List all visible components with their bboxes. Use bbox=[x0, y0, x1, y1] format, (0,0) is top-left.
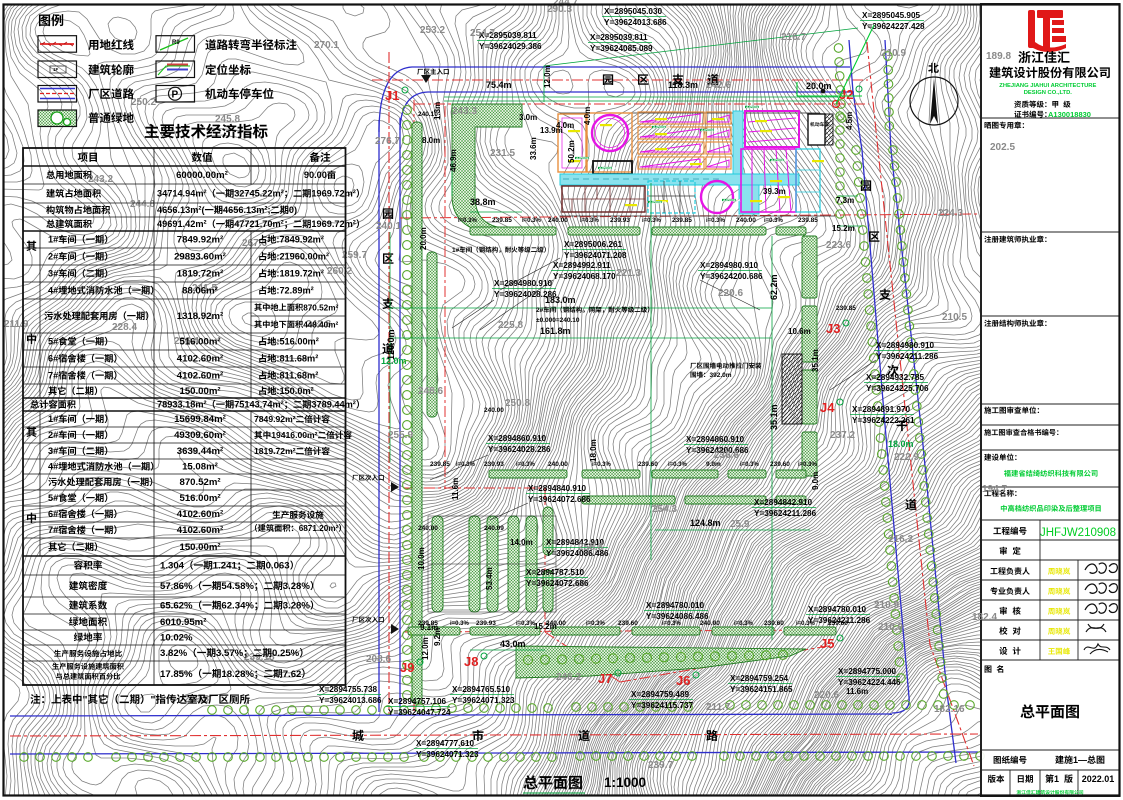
svg-text:3789.44m²: 3789.44m² bbox=[311, 400, 355, 410]
svg-text:i=0.3%: i=0.3% bbox=[592, 462, 612, 468]
svg-text:239.93: 239.93 bbox=[476, 620, 496, 627]
svg-text:53.4m: 53.4m bbox=[485, 567, 494, 590]
svg-text:216.7: 216.7 bbox=[781, 32, 806, 43]
svg-text:240.00: 240.00 bbox=[546, 620, 566, 627]
svg-text:Y=39624068.170: Y=39624068.170 bbox=[553, 272, 616, 281]
svg-text:18.28%: 18.28% bbox=[221, 669, 254, 680]
svg-text::150.0m²: :150.0m² bbox=[276, 386, 313, 396]
svg-text:JHFJW210908: JHFJW210908 bbox=[1040, 527, 1116, 539]
svg-text:ZHEJIANG JIAHUI ARCHITECTURE: ZHEJIANG JIAHUI ARCHITECTURE bbox=[999, 83, 1096, 89]
svg-text:4-6500kVA: 4-6500kVA bbox=[701, 129, 719, 133]
svg-text:X=2895006.261: X=2895006.261 bbox=[564, 240, 622, 249]
svg-text:194.7: 194.7 bbox=[982, 484, 1007, 495]
svg-text:124.8m: 124.8m bbox=[690, 518, 721, 528]
svg-text:239.60: 239.60 bbox=[764, 620, 784, 627]
svg-text:20.0m: 20.0m bbox=[806, 81, 832, 91]
svg-text:244.8: 244.8 bbox=[130, 199, 155, 210]
svg-text:250.8: 250.8 bbox=[505, 398, 530, 409]
svg-text:120.0m: 120.0m bbox=[386, 329, 396, 360]
svg-text:4656.13m²;: 4656.13m²; bbox=[223, 205, 271, 215]
svg-text:Y=39624085.089: Y=39624085.089 bbox=[590, 44, 653, 53]
svg-text:18.0m: 18.0m bbox=[589, 439, 598, 462]
svg-text:240.00: 240.00 bbox=[736, 217, 756, 224]
svg-text:243.3: 243.3 bbox=[452, 106, 477, 117]
svg-text:Y=39624225.706: Y=39624225.706 bbox=[866, 384, 929, 393]
svg-text:J4: J4 bbox=[820, 400, 835, 415]
svg-text:220.6: 220.6 bbox=[718, 288, 743, 299]
svg-text:A130018830: A130018830 bbox=[1048, 110, 1091, 119]
svg-text:3.82%: 3.82% bbox=[160, 648, 188, 659]
svg-text:20.0m: 20.0m bbox=[419, 227, 428, 250]
svg-text:448.40m²: 448.40m² bbox=[303, 320, 338, 329]
svg-text:X=2894759.489: X=2894759.489 bbox=[631, 690, 689, 699]
svg-text:248.6: 248.6 bbox=[418, 386, 443, 397]
svg-text:J6: J6 bbox=[676, 673, 690, 688]
svg-text:7849.92m²: 7849.92m² bbox=[254, 414, 296, 424]
svg-text:231.5: 231.5 bbox=[490, 148, 515, 159]
svg-text:1: 1 bbox=[1054, 774, 1059, 784]
svg-text:R9: R9 bbox=[172, 40, 180, 46]
svg-text:516.00m²: 516.00m² bbox=[180, 337, 221, 348]
svg-text:6#: 6# bbox=[48, 509, 58, 519]
svg-text:X=2894842.910: X=2894842.910 bbox=[754, 498, 812, 507]
svg-text:182.16: 182.16 bbox=[934, 704, 965, 715]
svg-text:i=0.3%: i=0.3% bbox=[450, 621, 470, 627]
svg-text:0.25%: 0.25% bbox=[272, 648, 300, 659]
svg-text:1318.92m²: 1318.92m² bbox=[177, 311, 223, 322]
svg-text:Y=39624028.286: Y=39624028.286 bbox=[494, 290, 557, 299]
svg-text:4102.60m²: 4102.60m² bbox=[177, 354, 223, 365]
svg-text:3.0m: 3.0m bbox=[519, 113, 537, 122]
svg-text:4102.60m²: 4102.60m² bbox=[177, 525, 223, 536]
svg-text:34714.94m²: 34714.94m² bbox=[157, 189, 207, 199]
svg-text:3.28%: 3.28% bbox=[283, 581, 311, 592]
svg-text:33.6m: 33.6m bbox=[529, 137, 538, 160]
svg-text:222.9: 222.9 bbox=[894, 452, 919, 463]
svg-text:±0.000=240.10: ±0.000=240.10 bbox=[536, 317, 580, 324]
svg-text:J1: J1 bbox=[385, 88, 399, 103]
svg-text:3#: 3# bbox=[48, 269, 58, 279]
svg-text:14.0m: 14.0m bbox=[510, 538, 533, 547]
svg-text:202.5: 202.5 bbox=[990, 142, 1015, 153]
svg-text:i=0.3%: i=0.3% bbox=[668, 462, 688, 468]
svg-text::811.68m²: :811.68m² bbox=[276, 354, 318, 364]
svg-text:X=2894765.510: X=2894765.510 bbox=[452, 685, 510, 694]
svg-text:Y=39624211.286: Y=39624211.286 bbox=[876, 352, 939, 361]
svg-text:Y=39624115.737: Y=39624115.737 bbox=[631, 701, 694, 710]
svg-text:2#: 2# bbox=[536, 307, 544, 314]
svg-text:240.00: 240.00 bbox=[484, 407, 504, 414]
svg-text:223.6: 223.6 bbox=[826, 240, 851, 251]
svg-text:216.2: 216.2 bbox=[888, 534, 913, 545]
svg-text:4-6500kVA: 4-6500kVA bbox=[649, 201, 667, 205]
svg-text:15.08m²: 15.08m² bbox=[182, 462, 218, 473]
svg-text:4.0m: 4.0m bbox=[583, 107, 592, 125]
svg-text:392.0m: 392.0m bbox=[710, 372, 732, 379]
svg-text:DESIGN CO.,LTD.: DESIGN CO.,LTD. bbox=[1024, 90, 1073, 96]
svg-text:46.9m: 46.9m bbox=[449, 149, 458, 172]
svg-text:240.10: 240.10 bbox=[418, 111, 438, 118]
svg-text:7.62: 7.62 bbox=[283, 669, 302, 680]
svg-text:J5: J5 bbox=[820, 636, 834, 651]
svg-text:50.2m: 50.2m bbox=[567, 140, 576, 163]
svg-text:6871.20m²: 6871.20m² bbox=[299, 524, 339, 533]
svg-text:10.6m: 10.6m bbox=[788, 327, 811, 336]
svg-text::516.00m²: :516.00m² bbox=[276, 337, 318, 347]
svg-text:211.7: 211.7 bbox=[706, 702, 731, 713]
svg-text:6010.95m²: 6010.95m² bbox=[160, 617, 206, 628]
svg-text:0): 0) bbox=[289, 205, 297, 215]
svg-text:1F: 1F bbox=[53, 67, 59, 72]
svg-text:9.2m: 9.2m bbox=[433, 628, 442, 646]
svg-text:X=2895039.811: X=2895039.811 bbox=[590, 33, 648, 42]
svg-text:J3: J3 bbox=[826, 321, 840, 336]
svg-text:1—: 1— bbox=[1073, 755, 1087, 765]
svg-text:Y=39624072.686: Y=39624072.686 bbox=[528, 495, 591, 504]
svg-text:i=0.3%: i=0.3% bbox=[586, 621, 606, 627]
svg-text:49309.60m²: 49309.60m² bbox=[174, 430, 226, 441]
svg-text:i=0.3%: i=0.3% bbox=[516, 621, 536, 627]
svg-text:90.00: 90.00 bbox=[304, 170, 327, 180]
svg-text:239.93: 239.93 bbox=[610, 217, 630, 224]
svg-text:239.85: 239.85 bbox=[836, 305, 856, 312]
svg-text:239.85: 239.85 bbox=[798, 217, 818, 224]
svg-text:1#: 1# bbox=[452, 247, 460, 254]
svg-text:240.09: 240.09 bbox=[484, 525, 504, 532]
svg-text:5#: 5# bbox=[48, 493, 58, 503]
svg-text:1.304: 1.304 bbox=[160, 561, 185, 572]
svg-text:2022.01: 2022.01 bbox=[1082, 774, 1115, 784]
svg-text:62.34%: 62.34% bbox=[221, 601, 254, 612]
svg-text:X=2894980.910: X=2894980.910 bbox=[700, 261, 758, 270]
svg-text:i=0.3%: i=0.3% bbox=[456, 462, 476, 468]
svg-text:4#: 4# bbox=[48, 286, 58, 296]
svg-text:43.0m: 43.0m bbox=[500, 639, 526, 649]
svg-text:210.9: 210.9 bbox=[874, 600, 899, 611]
svg-text:X=2894840.910: X=2894840.910 bbox=[528, 484, 586, 493]
svg-text:239.85: 239.85 bbox=[492, 217, 512, 224]
svg-text:1819.72m²: 1819.72m² bbox=[254, 446, 296, 456]
svg-text:Y=39624151.865: Y=39624151.865 bbox=[730, 685, 793, 694]
svg-text:75.4m: 75.4m bbox=[486, 80, 512, 90]
svg-text::21960.00m²: :21960.00m² bbox=[276, 252, 329, 262]
svg-text:210.9: 210.9 bbox=[878, 622, 903, 633]
svg-text:225.8: 225.8 bbox=[498, 320, 523, 331]
svg-text:7849.92m²: 7849.92m² bbox=[177, 235, 223, 246]
svg-text:X=2894980.910: X=2894980.910 bbox=[876, 341, 934, 350]
svg-text:65.62%: 65.62% bbox=[160, 601, 193, 612]
svg-text:250.2: 250.2 bbox=[131, 97, 156, 108]
svg-text:i=0.3%: i=0.3% bbox=[458, 218, 478, 224]
svg-text:150.00m²: 150.00m² bbox=[180, 386, 221, 397]
svg-text:i=0.3%: i=0.3% bbox=[662, 621, 682, 627]
svg-text:253.2: 253.2 bbox=[420, 25, 445, 36]
svg-text:516.00m²: 516.00m² bbox=[180, 493, 221, 504]
svg-text:240.00: 240.00 bbox=[548, 217, 568, 224]
svg-text::811.68m²: :811.68m² bbox=[276, 371, 318, 381]
svg-text:i=0.3%: i=0.3% bbox=[516, 462, 536, 468]
svg-text:Y=39624013.686: Y=39624013.686 bbox=[604, 18, 667, 27]
svg-text:239.60: 239.60 bbox=[770, 461, 790, 468]
svg-text:19416.00m²: 19416.00m² bbox=[271, 430, 317, 440]
svg-text:1#: 1# bbox=[48, 414, 58, 424]
svg-text:221.3: 221.3 bbox=[616, 268, 641, 279]
svg-text:4.5m: 4.5m bbox=[845, 112, 854, 130]
svg-text:211.9: 211.9 bbox=[4, 319, 29, 330]
svg-text:4-6500kVA: 4-6500kVA bbox=[599, 167, 617, 171]
svg-text:4-6500kVA: 4-6500kVA bbox=[771, 159, 789, 163]
svg-text:1969.72m²: 1969.72m² bbox=[311, 219, 355, 229]
svg-text:i=0.3%: i=0.3% bbox=[522, 218, 542, 224]
svg-text:57.86%: 57.86% bbox=[160, 581, 193, 592]
svg-text:240.00: 240.00 bbox=[700, 620, 720, 627]
svg-text:X=2894860.910: X=2894860.910 bbox=[488, 434, 546, 443]
svg-text:32745.22m²: 32745.22m² bbox=[234, 189, 284, 199]
svg-text::1819.72m²: :1819.72m² bbox=[276, 269, 324, 279]
svg-text:239.93: 239.93 bbox=[484, 461, 504, 468]
svg-text:X=2894860.910: X=2894860.910 bbox=[686, 435, 744, 444]
svg-text:276.7: 276.7 bbox=[375, 136, 400, 147]
svg-text:38.8m: 38.8m bbox=[470, 197, 496, 207]
svg-text:3.57%: 3.57% bbox=[216, 648, 244, 659]
svg-text:182.4: 182.4 bbox=[972, 612, 997, 623]
svg-text:7#: 7# bbox=[48, 371, 58, 381]
svg-text:239.60: 239.60 bbox=[638, 461, 658, 468]
svg-text:4-6500kVA: 4-6500kVA bbox=[723, 199, 741, 203]
svg-text:60000.00m²: 60000.00m² bbox=[176, 170, 228, 181]
svg-text:88.06m²: 88.06m² bbox=[182, 286, 218, 297]
svg-text:Y=39624028.286: Y=39624028.286 bbox=[488, 445, 551, 454]
svg-text:J8: J8 bbox=[464, 654, 478, 669]
svg-text:Y=39624071.323: Y=39624071.323 bbox=[452, 696, 515, 705]
svg-text:i=0.3%: i=0.3% bbox=[764, 218, 784, 224]
svg-text:54.58%: 54.58% bbox=[221, 581, 254, 592]
svg-text:11.6m: 11.6m bbox=[451, 478, 460, 500]
svg-text:220.6: 220.6 bbox=[814, 690, 839, 701]
svg-text:1969.72m²: 1969.72m² bbox=[311, 189, 355, 199]
svg-text:240.1: 240.1 bbox=[376, 221, 401, 232]
svg-text:870.52m²: 870.52m² bbox=[180, 477, 221, 488]
svg-text:4-6500kVA: 4-6500kVA bbox=[653, 126, 671, 130]
svg-text:246.2: 246.2 bbox=[556, 672, 581, 683]
svg-text:X=2894780.010: X=2894780.010 bbox=[646, 601, 704, 610]
svg-text:224.3: 224.3 bbox=[938, 208, 963, 219]
svg-text:Y=39624013.686: Y=39624013.686 bbox=[319, 696, 382, 705]
svg-text:210.5: 210.5 bbox=[942, 312, 967, 323]
svg-text:8.0m: 8.0m bbox=[422, 136, 440, 145]
svg-text:35.1m: 35.1m bbox=[769, 404, 779, 430]
svg-text:6#: 6# bbox=[48, 354, 58, 364]
svg-text:1819.72m²: 1819.72m² bbox=[177, 269, 223, 280]
svg-text:2#: 2# bbox=[48, 252, 58, 262]
svg-text:Y=39624072.686: Y=39624072.686 bbox=[526, 579, 589, 588]
svg-text:9.0m: 9.0m bbox=[706, 461, 721, 468]
svg-text:210.9: 210.9 bbox=[881, 48, 906, 59]
svg-text:118.3m: 118.3m bbox=[668, 80, 698, 90]
svg-text:5#: 5# bbox=[48, 337, 58, 347]
svg-text:255.9: 255.9 bbox=[388, 430, 413, 441]
svg-text:242.6: 242.6 bbox=[706, 80, 731, 91]
svg-text:78933.18m²: 78933.18m² bbox=[157, 400, 207, 410]
svg-text::7849.92m²: :7849.92m² bbox=[276, 235, 324, 245]
svg-text:i=0.3%: i=0.3% bbox=[740, 462, 760, 468]
svg-text:245.8: 245.8 bbox=[215, 114, 240, 125]
svg-text:208.6: 208.6 bbox=[366, 654, 391, 665]
svg-text:4-6500kVA: 4-6500kVA bbox=[746, 106, 764, 110]
svg-text:X=2895045.030: X=2895045.030 bbox=[604, 7, 662, 16]
svg-text:239.60: 239.60 bbox=[618, 620, 638, 627]
svg-text:239.85: 239.85 bbox=[430, 461, 450, 468]
svg-text:0.063: 0.063 bbox=[266, 561, 290, 572]
svg-text:i=0.3%: i=0.3% bbox=[706, 218, 726, 224]
svg-text:J9: J9 bbox=[400, 660, 414, 675]
svg-text:10.0m: 10.0m bbox=[417, 547, 426, 570]
svg-text::72.89m²: :72.89m² bbox=[276, 286, 313, 296]
svg-text:7.3m: 7.3m bbox=[836, 196, 854, 205]
svg-text:3639.44m²: 3639.44m² bbox=[177, 446, 223, 457]
svg-text:12.0m: 12.0m bbox=[543, 65, 552, 88]
svg-text:25.9: 25.9 bbox=[730, 519, 750, 530]
svg-text:3#: 3# bbox=[48, 446, 58, 456]
svg-text:Y=39624222.261: Y=39624222.261 bbox=[852, 416, 915, 425]
svg-text:X=2894755.738: X=2894755.738 bbox=[319, 685, 377, 694]
svg-text:258.8: 258.8 bbox=[578, 542, 603, 553]
svg-text:X=2895045.905: X=2895045.905 bbox=[862, 11, 920, 20]
svg-text:239.85: 239.85 bbox=[672, 217, 692, 224]
svg-text:Y=39624211.286: Y=39624211.286 bbox=[754, 509, 817, 518]
svg-text:i=0.3%: i=0.3% bbox=[796, 621, 816, 627]
svg-text:243.2: 243.2 bbox=[88, 174, 113, 185]
svg-text:35.1m: 35.1m bbox=[811, 349, 820, 372]
svg-text:11.6m: 11.6m bbox=[846, 687, 868, 696]
svg-text:75143.74m²: 75143.74m² bbox=[234, 400, 284, 410]
svg-text:236.6: 236.6 bbox=[714, 450, 739, 461]
svg-text:18.0m: 18.0m bbox=[888, 439, 914, 449]
svg-text:X=2894777.610: X=2894777.610 bbox=[416, 739, 474, 748]
svg-text:Y=39624224.446: Y=39624224.446 bbox=[838, 678, 901, 687]
svg-text:X=2894891.970: X=2894891.970 bbox=[852, 405, 910, 414]
svg-text:4#: 4# bbox=[48, 462, 58, 472]
svg-text:7#: 7# bbox=[48, 525, 58, 535]
svg-text:254.7: 254.7 bbox=[470, 28, 495, 39]
svg-text:9.0m: 9.0m bbox=[811, 472, 820, 490]
svg-text:254.3: 254.3 bbox=[652, 504, 677, 515]
svg-text:4656.13m²(: 4656.13m²( bbox=[157, 205, 205, 215]
svg-text:4.0m: 4.0m bbox=[556, 121, 574, 130]
svg-text:Y=39624029.386: Y=39624029.386 bbox=[479, 42, 542, 51]
svg-text:239.7: 239.7 bbox=[648, 760, 673, 771]
svg-text:240.00: 240.00 bbox=[418, 525, 438, 532]
svg-text:12.0m: 12.0m bbox=[421, 637, 430, 660]
svg-text:J7: J7 bbox=[598, 671, 612, 686]
svg-text:4102.60m²: 4102.60m² bbox=[177, 371, 223, 382]
svg-text:3.28%: 3.28% bbox=[283, 601, 311, 612]
svg-text:X=2894787.510: X=2894787.510 bbox=[526, 568, 584, 577]
svg-text:237.2: 237.2 bbox=[830, 430, 855, 441]
svg-text:240.00: 240.00 bbox=[548, 461, 568, 468]
svg-text:Y=39624200.686: Y=39624200.686 bbox=[700, 272, 763, 281]
svg-text:239.85: 239.85 bbox=[418, 620, 438, 627]
svg-text:270.1: 270.1 bbox=[314, 40, 339, 51]
svg-text:Y=39624071.323: Y=39624071.323 bbox=[416, 750, 479, 759]
svg-text:228.4: 228.4 bbox=[112, 322, 137, 333]
svg-text:X=2894757.106: X=2894757.106 bbox=[388, 697, 446, 706]
svg-text:i=0.3%: i=0.3% bbox=[642, 218, 662, 224]
svg-text:29893.60m²: 29893.60m² bbox=[174, 252, 226, 263]
svg-text:161.8m: 161.8m bbox=[540, 326, 571, 336]
svg-text:49691.42m²: 49691.42m² bbox=[157, 219, 207, 229]
svg-text:1:1000: 1:1000 bbox=[604, 775, 646, 790]
svg-text:": " bbox=[83, 694, 88, 706]
svg-text:i=0.3%: i=0.3% bbox=[734, 621, 754, 627]
svg-text:2#: 2# bbox=[48, 430, 58, 440]
svg-text:X=2894992.911: X=2894992.911 bbox=[553, 261, 611, 270]
svg-text:Y=39624047.724: Y=39624047.724 bbox=[388, 708, 451, 717]
svg-text:189.8: 189.8 bbox=[986, 51, 1011, 62]
svg-text:X=2894775.000: X=2894775.000 bbox=[838, 667, 896, 676]
svg-text:870.52m²: 870.52m² bbox=[303, 303, 338, 312]
svg-text:47721.70m²: 47721.70m² bbox=[234, 219, 284, 229]
svg-text:39.3m: 39.3m bbox=[763, 187, 786, 196]
svg-text:4102.60m²: 4102.60m² bbox=[177, 509, 223, 520]
svg-text:4-6500kVA: 4-6500kVA bbox=[576, 157, 594, 161]
svg-text:15699.84m²: 15699.84m² bbox=[174, 414, 226, 425]
svg-text:X=2894932.785: X=2894932.785 bbox=[866, 373, 924, 382]
svg-text:15.2m: 15.2m bbox=[832, 224, 855, 233]
svg-text:239.60: 239.60 bbox=[828, 620, 848, 627]
svg-text:X=2894759.254: X=2894759.254 bbox=[730, 674, 788, 683]
svg-text:1.241: 1.241 bbox=[213, 561, 238, 572]
svg-text:i=0.3%: i=0.3% bbox=[798, 462, 818, 468]
svg-text:i=0.3%: i=0.3% bbox=[580, 218, 600, 224]
svg-text:": " bbox=[151, 694, 156, 706]
svg-text:17.85%: 17.85% bbox=[160, 669, 193, 680]
svg-text:150.00m²: 150.00m² bbox=[180, 542, 221, 553]
svg-text:62.2m: 62.2m bbox=[769, 274, 779, 300]
svg-text:1#: 1# bbox=[48, 235, 58, 245]
svg-text:Y=39624071.208: Y=39624071.208 bbox=[564, 251, 627, 260]
svg-text:X=2894780.010: X=2894780.010 bbox=[808, 605, 866, 614]
svg-text:P: P bbox=[172, 90, 179, 101]
svg-text:10.02%: 10.02% bbox=[160, 633, 193, 644]
svg-text:260.2: 260.2 bbox=[327, 266, 352, 277]
